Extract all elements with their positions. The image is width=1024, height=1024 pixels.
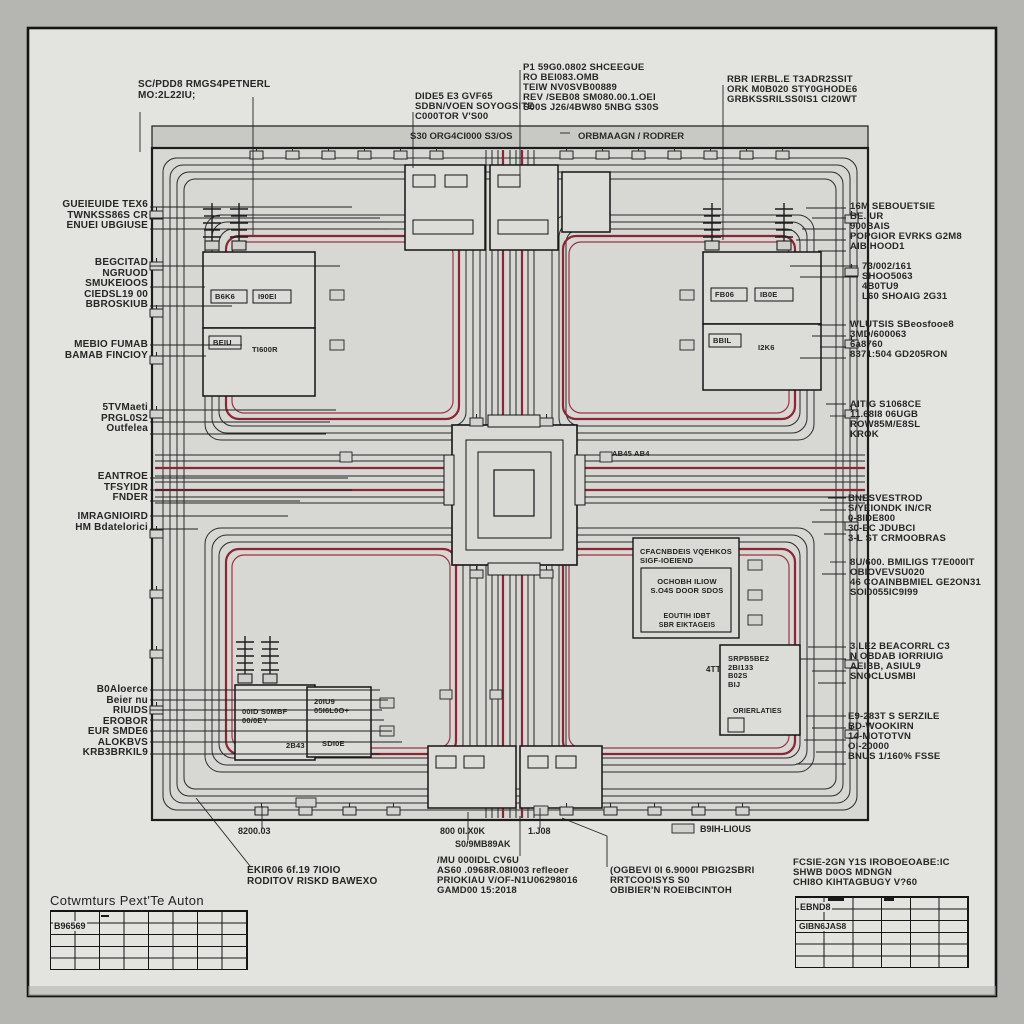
info-box-body: OCHOBH ILIOWS.O4S DOOR SDOS <box>648 578 726 595</box>
block-ur-label-2: IB0E <box>760 291 777 300</box>
left-title-table <box>50 910 248 970</box>
block-ll-b-sub: SDI0E <box>322 740 345 749</box>
callout-right-8: E9-283T S SERZILEBD-WOOKIRN14-MOTOTVNOI-… <box>848 712 940 762</box>
callout-bottom-1: EKIR06 6f.19 7IOIORODITOV RISKD BAWEXO <box>247 866 378 887</box>
block-ur-label-4: I2K6 <box>758 344 775 353</box>
callout-right-5: BNESVESTRODS/YEIONDK IN/CR0-8IDE80030-EC… <box>848 494 946 544</box>
callout-left-2: BEGCITADNGRUODSMUKEIOOSCIEDSL19 00BBROSK… <box>40 258 148 311</box>
callout-top-right: RBR IERBL.E T3ADR2SSITORK M0B020 STY0GHO… <box>727 75 857 105</box>
right-table-cell-2: GIBN6JAS8 <box>798 921 847 931</box>
callout-left-7: B0AloerceBeier nuRIUIDSEROBOREUR SMDE6AL… <box>40 685 148 759</box>
callout-right-6: 8U/600. BMILIGS T7E000ITOBIOVEVSU02046 C… <box>850 558 981 598</box>
center-junction <box>444 415 585 575</box>
left-table-title: Cotwmturs Pext'Te Auton <box>50 893 204 908</box>
callout-right-3: WLUTSIS SBeosfooe83MD/6000636a87608371:5… <box>850 320 954 360</box>
label-s09: S0/9MB89AK <box>455 839 511 849</box>
transformer-block-upper-left <box>203 252 315 396</box>
block-ur-label-1: FB06 <box>715 291 734 300</box>
callout-bottom-3: (OGBEVI 0I 6.9000I PBIG2SBRIRRTCOOISYS S… <box>610 866 754 896</box>
block-lr-head: SRPB5BE22BI133B02SBIJ <box>728 655 788 689</box>
callout-left-1: GUEIEUIDE TEX6TWNKSS86S CRENUEI UBGIUSE <box>40 200 148 232</box>
callout-top-center-a: DIDE5 E3 GVF65SDBN/VOEN SOYOGSITEC000TOR… <box>415 92 534 122</box>
callout-bottom-right: FCSIE-2GN Y1S IROBOEOABE:ICSHWB D0OS MDN… <box>793 858 950 888</box>
schematic-page: { "colors": { "page_margin": "#b5b5b2", … <box>0 0 1024 1024</box>
block-ul-label-3: BEIU <box>213 339 232 348</box>
block-ur-label-3: BBIL <box>713 337 731 346</box>
left-table-cell: B96569 <box>53 921 87 931</box>
block-ul-label-4: TI600R <box>252 346 278 355</box>
block-ul-label-1: B6K6 <box>215 293 235 302</box>
callout-left-6: IMRAGNIOIRDHM Bdatelorici <box>40 512 148 533</box>
callout-top-center-b: P1 59G0.0802 SHCEEGUERO BEI083.OMBTEIW N… <box>523 63 659 113</box>
info-box-footer: EOUTIH IDBTSBR EIKTAGEIS <box>656 613 718 630</box>
block-ul-label-2: I90EI <box>258 293 277 302</box>
callout-left-4: 5TVMaetiPRGL0S2Outfelea <box>40 403 148 435</box>
callout-right-2: 73/002/161SHOO50634B0TU9L60 SHOAIG 2G31 <box>862 262 947 302</box>
label-1j08: 1.J08 <box>528 826 551 836</box>
callout-bottom-2: /MU 000IDL CV6UAS60 .0968R.08I003 refleo… <box>437 856 578 896</box>
callout-left-5: EANTROETFSYIDRFNDER <box>40 472 148 504</box>
label-b9ih: B9IH-LIOUS <box>700 824 751 834</box>
block-ll-b-label: 20IU905I6L0O+ <box>314 698 366 715</box>
label-8200: 8200.03 <box>238 826 271 836</box>
block-ll-a-label: 00ID S0MBF00/0EY <box>242 708 308 725</box>
callout-right-1: 16M SEBOUETSIEBE.IUR900BAISPOPGIOR EVRKS… <box>850 202 962 252</box>
callout-left-3: MEBIO FUMABBAMAB FINCIOY <box>40 340 148 361</box>
bottom-center-blocks <box>428 746 602 808</box>
right-table-cell-1: EBND8 <box>799 902 832 912</box>
callout-right-7: 3.LE2 BEACORRL C3N OBDAB IORRIUIGAEIBB, … <box>850 642 950 682</box>
callout-right-4: AITIG S1068CE11.68I8 06UGBROW85M/E8SLKRO… <box>850 400 921 440</box>
transformer-block-upper-right <box>703 252 821 390</box>
band-label-right: ORBMAAGN / RODRER <box>578 131 684 142</box>
block-lr-label: ORIERLATIES <box>733 708 782 717</box>
info-box-header: CFACNBDEIS VQEHKOSSIGF-IOEIEND <box>640 548 732 565</box>
center-note: AB45 AB4 <box>612 450 650 459</box>
callout-top-left: SC/PDD8 RMGS4PETNERLMO:2L22IU; <box>138 80 270 101</box>
block-lr-side: 4TT <box>706 666 721 675</box>
band-label-left: S30 ORG4CI000 S3/OS <box>410 131 512 142</box>
label-800: 800 0I.X0K <box>440 826 485 836</box>
block-ll-mid: 2B43 <box>286 742 305 751</box>
